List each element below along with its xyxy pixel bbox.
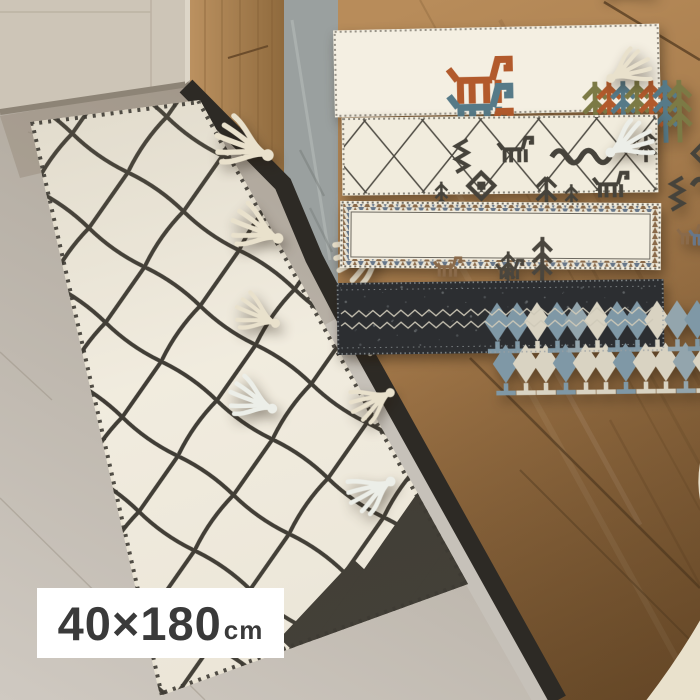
size-unit: cm [224, 617, 264, 643]
variant-swatch-bordered [340, 201, 661, 270]
product-photo: 40×180 cm [0, 0, 700, 700]
variant-swatch-charcoal [337, 279, 665, 355]
variant-swatch-ivory-motif [333, 24, 661, 118]
size-dimensions: 40×180 [58, 600, 222, 647]
doorway-strip [185, 0, 190, 84]
size-label: 40×180 cm [37, 588, 284, 658]
